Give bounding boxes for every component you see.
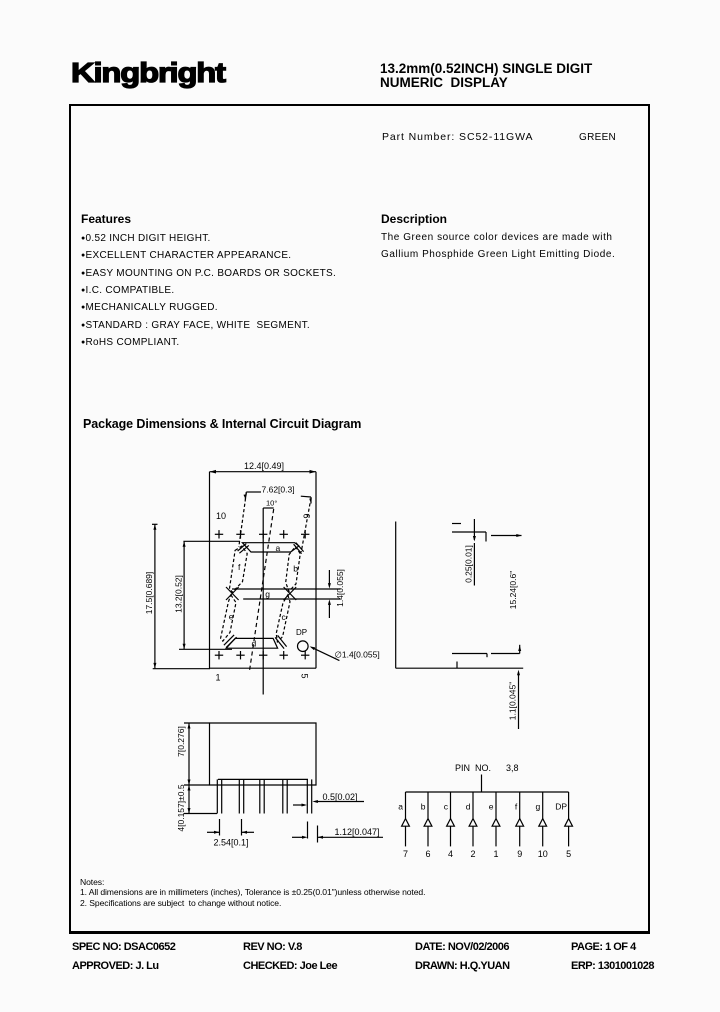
svg-text:1.4[0.055]: 1.4[0.055] bbox=[335, 569, 345, 607]
svg-text:0.25[0.01]: 0.25[0.01] bbox=[463, 545, 473, 583]
svg-text:a: a bbox=[398, 802, 403, 812]
svg-text:c: c bbox=[282, 612, 287, 622]
svg-text:10°: 10° bbox=[266, 499, 277, 508]
svg-text:10: 10 bbox=[216, 511, 226, 521]
svg-text:1.12[0.047]: 1.12[0.047] bbox=[335, 827, 380, 837]
svg-text:a: a bbox=[276, 543, 281, 553]
svg-text:g: g bbox=[535, 802, 540, 812]
svg-text:PIN NO. 3,8: PIN NO. 3,8 bbox=[455, 763, 519, 773]
svg-text:2.54[0.1]: 2.54[0.1] bbox=[214, 838, 249, 848]
svg-text:DP: DP bbox=[555, 802, 567, 812]
svg-text:1: 1 bbox=[216, 673, 221, 683]
svg-text:4[0.157]±0.5: 4[0.157]±0.5 bbox=[176, 784, 186, 831]
svg-text:1.1[0.045": 1.1[0.045" bbox=[507, 682, 517, 720]
svg-text:10: 10 bbox=[538, 849, 548, 859]
svg-text:0.5[0.02]: 0.5[0.02] bbox=[323, 792, 358, 802]
svg-text:b: b bbox=[421, 802, 426, 812]
svg-text:15.24[0.6": 15.24[0.6" bbox=[508, 571, 518, 609]
svg-text:2: 2 bbox=[470, 849, 475, 859]
svg-text:7.62[0.3]: 7.62[0.3] bbox=[262, 485, 295, 495]
svg-text:DP: DP bbox=[296, 628, 307, 637]
svg-text:7: 7 bbox=[403, 849, 408, 859]
svg-text:g: g bbox=[265, 589, 270, 599]
svg-text:17.5[0.689]: 17.5[0.689] bbox=[144, 572, 154, 615]
svg-text:1: 1 bbox=[493, 849, 498, 859]
svg-text:c: c bbox=[444, 802, 449, 812]
svg-text:f: f bbox=[238, 562, 241, 572]
svg-text:6: 6 bbox=[302, 513, 312, 518]
svg-text:4: 4 bbox=[448, 849, 453, 859]
svg-text:e: e bbox=[229, 612, 234, 622]
svg-text:d: d bbox=[466, 802, 471, 812]
svg-text:7[0.276]: 7[0.276] bbox=[176, 726, 186, 757]
svg-text:b: b bbox=[293, 564, 298, 574]
svg-text:5: 5 bbox=[566, 849, 571, 859]
svg-text:e: e bbox=[489, 802, 494, 812]
svg-text:12.4[0.49]: 12.4[0.49] bbox=[244, 461, 284, 471]
svg-text:13.2[0.52]: 13.2[0.52] bbox=[173, 575, 183, 613]
svg-text:6: 6 bbox=[425, 849, 430, 859]
svg-text:5: 5 bbox=[300, 673, 310, 678]
svg-text:f: f bbox=[515, 802, 518, 812]
svg-text:9: 9 bbox=[517, 849, 522, 859]
svg-text:∅1.4[0.055]: ∅1.4[0.055] bbox=[335, 650, 380, 660]
svg-text:d: d bbox=[252, 639, 257, 649]
